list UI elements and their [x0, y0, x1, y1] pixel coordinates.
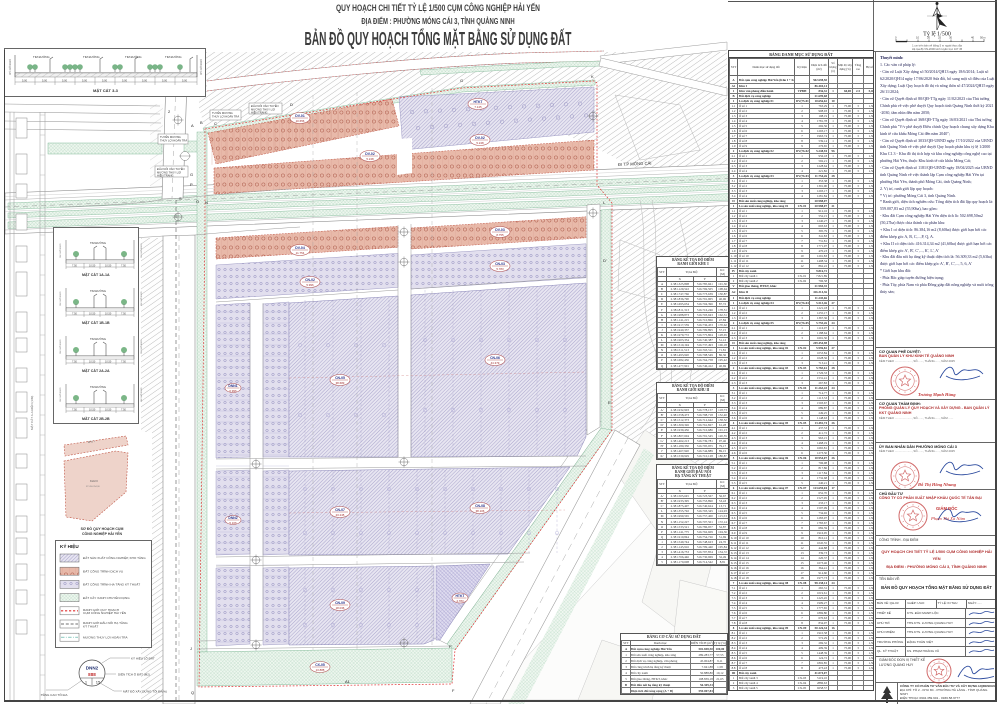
svg-text:5.166: 5.166	[229, 521, 237, 525]
svg-text:F': F'	[449, 644, 452, 649]
svg-text:7,50: 7,50	[72, 312, 77, 315]
svg-text:CN-07: CN-07	[335, 508, 345, 512]
svg-text:5,00: 5,00	[142, 78, 148, 82]
svg-text:A: A	[191, 123, 194, 128]
svg-text:CN-09: CN-09	[335, 601, 345, 605]
svg-text:4.783: 4.783	[456, 599, 464, 603]
svg-text:0: 0	[895, 36, 897, 40]
svg-text:8.755: 8.755	[496, 233, 504, 237]
svg-text:S: S	[179, 196, 182, 201]
svg-text:KHU II: KHU II	[90, 479, 98, 483]
svg-text:TIM ĐƯỜNG: TIM ĐƯỜNG	[83, 54, 100, 59]
svg-text:CỤM CÔNG NGHIỆP HẢI YẾN: CỤM CÔNG NGHIỆP HẢI YẾN	[83, 610, 126, 615]
svg-text:5.248: 5.248	[366, 157, 374, 161]
svg-text:P: P	[190, 182, 193, 187]
svg-text:D: D	[290, 102, 293, 107]
svg-text:DV-02: DV-02	[475, 136, 485, 140]
svg-text:CHỈ GIỚI Đ.ĐỎ: CHỈ GIỚI Đ.ĐỎ	[200, 59, 203, 75]
svg-text:CX-05: CX-05	[315, 663, 325, 667]
svg-text:7,50: 7,50	[72, 408, 77, 411]
svg-text:F: F	[452, 688, 455, 693]
svg-text:B: B	[200, 120, 203, 125]
svg-text:7,50: 7,50	[121, 360, 126, 363]
svg-text:TIM ĐƯỜNG: TIM ĐƯỜNG	[33, 54, 50, 59]
svg-text:J: J	[190, 646, 192, 651]
svg-text:CÔNG NGHIỆP HẢI YẾN: CÔNG NGHIỆP HẢI YẾN	[82, 531, 122, 536]
svg-text:5,00: 5,00	[62, 78, 68, 82]
svg-text:6.996: 6.996	[229, 389, 237, 393]
svg-text:C: C	[214, 121, 217, 126]
svg-text:7,50: 7,50	[72, 264, 77, 267]
svg-text:MƯƠNG THỦY LỢI HOÀN TRẢ: MƯƠNG THỦY LỢI HOÀN TRẢ	[83, 634, 128, 639]
svg-text:7,50: 7,50	[121, 312, 126, 315]
svg-text:O: O	[196, 199, 199, 204]
svg-text:TẦNG CAO TỐI ĐA: TẦNG CAO TỐI ĐA	[41, 692, 67, 697]
svg-text:ĐẤT CÂY XANH CHUYÊN DỤNG: ĐẤT CÂY XANH CHUYÊN DỤNG	[83, 595, 130, 600]
svg-text:K: K	[591, 74, 594, 79]
svg-text:5,00: 5,00	[42, 78, 48, 82]
svg-text:SƠ ĐỒ QUY HOẠCH CỤM: SƠ ĐỒ QUY HOẠCH CỤM	[81, 526, 124, 531]
svg-text:ĐẤT SẢN XUẤT CÔNG NGHIỆP, KHO: ĐẤT SẢN XUẤT CÔNG NGHIỆP, KHO TÀNG	[83, 555, 146, 560]
svg-text:23.245: 23.245	[336, 513, 345, 517]
svg-text:CN-08: CN-08	[475, 504, 485, 508]
svg-text:TIM ĐƯỜNG: TIM ĐƯỜNG	[90, 240, 106, 245]
svg-text:5.996: 5.996	[306, 283, 314, 287]
svg-text:5,00: 5,00	[122, 78, 128, 82]
svg-text:7,50: 7,50	[72, 360, 77, 363]
svg-text:10,50: 10,50	[105, 408, 112, 411]
svg-text:HTKT: HTKT	[473, 100, 483, 104]
svg-text:888: 888	[88, 672, 96, 677]
svg-text:CHỈ GIỚI Đ.ĐỎ: CHỈ GIỚI Đ.ĐỎ	[59, 387, 62, 402]
svg-text:ĐẤT CÔNG TRÌNH HẠ TẦNG KỸ THUẬ: ĐẤT CÔNG TRÌNH HẠ TẦNG KỸ THUẬT	[83, 582, 140, 587]
svg-text:G: G	[460, 78, 463, 83]
svg-text:MẶT CẮT 3-3: MẶT CẮT 3-3	[93, 88, 119, 93]
svg-text:CHỈ GIỚI Đ.ĐỎ: CHỈ GIỚI Đ.ĐỎ	[9, 59, 12, 75]
svg-text:CN-03: CN-03	[495, 262, 505, 266]
svg-text:HTKT: HTKT	[455, 594, 465, 598]
svg-text:5.248: 5.248	[476, 141, 484, 145]
svg-text:DNN2: DNN2	[86, 666, 99, 671]
svg-text:MẶT CẮT 2A-2A: MẶT CẮT 2A-2A	[82, 368, 110, 373]
svg-text:DV-04: DV-04	[295, 246, 305, 250]
svg-text:38.106: 38.106	[476, 509, 485, 513]
svg-text:CHỈ GIỚI Đ.ĐỎ: CHỈ GIỚI Đ.ĐỎ	[59, 339, 62, 354]
svg-text:11.754: 11.754	[296, 251, 305, 255]
svg-text:DV-02: DV-02	[365, 152, 375, 156]
svg-text:5,00: 5,00	[162, 78, 168, 82]
svg-text:ST 416.294,36: ST 416.294,36	[86, 486, 100, 488]
svg-text:18.036: 18.036	[336, 606, 345, 610]
svg-text:38.683: 38.683	[336, 381, 345, 385]
svg-text:N: N	[205, 200, 208, 205]
svg-text:10,50: 10,50	[105, 264, 112, 267]
svg-text:10: 10	[916, 36, 920, 40]
svg-text:50m: 50m	[980, 36, 986, 40]
svg-text:44.379: 44.379	[491, 361, 500, 365]
svg-text:KỸ THUẬT: KỸ THUẬT	[83, 623, 98, 628]
svg-text:30: 30	[949, 36, 953, 40]
svg-text:10,50: 10,50	[105, 312, 112, 315]
svg-text:7.145: 7.145	[474, 105, 482, 109]
svg-text:E': E'	[608, 400, 612, 405]
svg-text:7,50: 7,50	[121, 408, 126, 411]
svg-text:Hệ tọa độ VN-2000 kinh tuyến t: Hệ tọa độ VN-2000 kinh tuyến trục 107 45	[912, 47, 963, 51]
svg-text:5,00: 5,00	[182, 78, 188, 82]
svg-text:20: 20	[927, 36, 931, 40]
svg-text:5,00: 5,00	[102, 78, 108, 82]
svg-text:CHỈ GIỚI Đ.ĐỎ: CHỈ GIỚI Đ.ĐỎ	[140, 291, 143, 306]
svg-text:DV-01: DV-01	[295, 114, 305, 118]
svg-text:CHỈ GIỚI Đ.ĐỎ: CHỈ GIỚI Đ.ĐỎ	[59, 291, 62, 306]
svg-text:DIỆN TÍCH Ô ĐẤT (M2): DIỆN TÍCH Ô ĐẤT (M2)	[118, 672, 150, 677]
svg-text:MẶT CẮT 2B-2B: MẶT CẮT 2B-2B	[82, 416, 110, 420]
svg-text:CHỈ GIỚI Đ.ĐỎ: CHỈ GIỚI Đ.ĐỎ	[140, 243, 143, 258]
svg-text:ĐẤT CÔNG TRÌNH DỊCH VỤ: ĐẤT CÔNG TRÌNH DỊCH VỤ	[83, 568, 123, 573]
svg-text:KÝ HIỆU LÔ ĐẤT: KÝ HIỆU LÔ ĐẤT	[131, 656, 155, 661]
svg-text:DNN2: DNN2	[228, 516, 237, 520]
svg-text:TIM ĐƯỜNG: TIM ĐƯỜNG	[165, 54, 182, 59]
svg-text:5,00: 5,00	[22, 78, 28, 82]
svg-text:A1: A1	[345, 679, 351, 684]
svg-text:CHỈ GIỚI Đ.ĐỎ: CHỈ GIỚI Đ.ĐỎ	[59, 243, 62, 258]
svg-text:DNN1: DNN1	[228, 384, 237, 388]
svg-text:10.656: 10.656	[296, 119, 305, 123]
svg-text:1 cm trên bản vẽ bằng 5 m ngo: 1 cm trên bản vẽ bằng 5 m ngoài thực địa	[912, 43, 962, 48]
svg-text:5.783: 5.783	[496, 267, 504, 271]
svg-text:G: G	[190, 172, 193, 177]
svg-text:D': D'	[603, 258, 607, 263]
svg-text:10,50: 10,50	[89, 312, 96, 315]
svg-text:TIM ĐƯỜNG: TIM ĐƯỜNG	[125, 54, 142, 59]
svg-text:25: 25	[938, 36, 942, 40]
svg-text:TIM ĐƯỜNG: TIM ĐƯỜNG	[90, 288, 106, 293]
svg-text:CN-02: CN-02	[305, 278, 315, 282]
svg-text:10,50: 10,50	[89, 360, 96, 363]
svg-text:CHỈ GIỚI Đ.ĐỎ: CHỈ GIỚI Đ.ĐỎ	[140, 339, 143, 354]
svg-text:Q: Q	[191, 690, 194, 695]
svg-text:CN-05: CN-05	[335, 376, 345, 380]
svg-text:5,00: 5,00	[82, 78, 88, 82]
svg-text:10,50: 10,50	[89, 408, 96, 411]
svg-text:DV-03: DV-03	[495, 228, 505, 232]
svg-text:15: 15	[96, 680, 101, 685]
svg-text:MẬT ĐỘ XÂY DỰNG TỐI ĐA(%): MẬT ĐỘ XÂY DỰNG TỐI ĐA(%)	[123, 689, 167, 694]
svg-text:7,50: 7,50	[121, 264, 126, 267]
svg-text:10,50: 10,50	[89, 264, 96, 267]
svg-text:CN-06: CN-06	[490, 356, 500, 360]
svg-text:MẶT CẮT A-A ĐIỆN (1/M): MẶT CẮT A-A ĐIỆN (1/M)	[29, 396, 34, 430]
svg-text:MẶT CẮT 1B-1B: MẶT CẮT 1B-1B	[82, 320, 110, 325]
svg-text:CHỈ GIỚI Đ.ĐỎ: CHỈ GIỚI Đ.ĐỎ	[140, 387, 143, 402]
svg-text:MẶT CẮT 1A-1A: MẶT CẮT 1A-1A	[82, 272, 110, 277]
svg-text:10,50: 10,50	[105, 360, 112, 363]
svg-text:TIM ĐƯỜNG: TIM ĐƯỜNG	[90, 384, 106, 389]
svg-text:13.888: 13.888	[316, 668, 325, 672]
svg-text:40: 40	[971, 36, 975, 40]
svg-text:TIM ĐƯỜNG: TIM ĐƯỜNG	[90, 336, 106, 341]
